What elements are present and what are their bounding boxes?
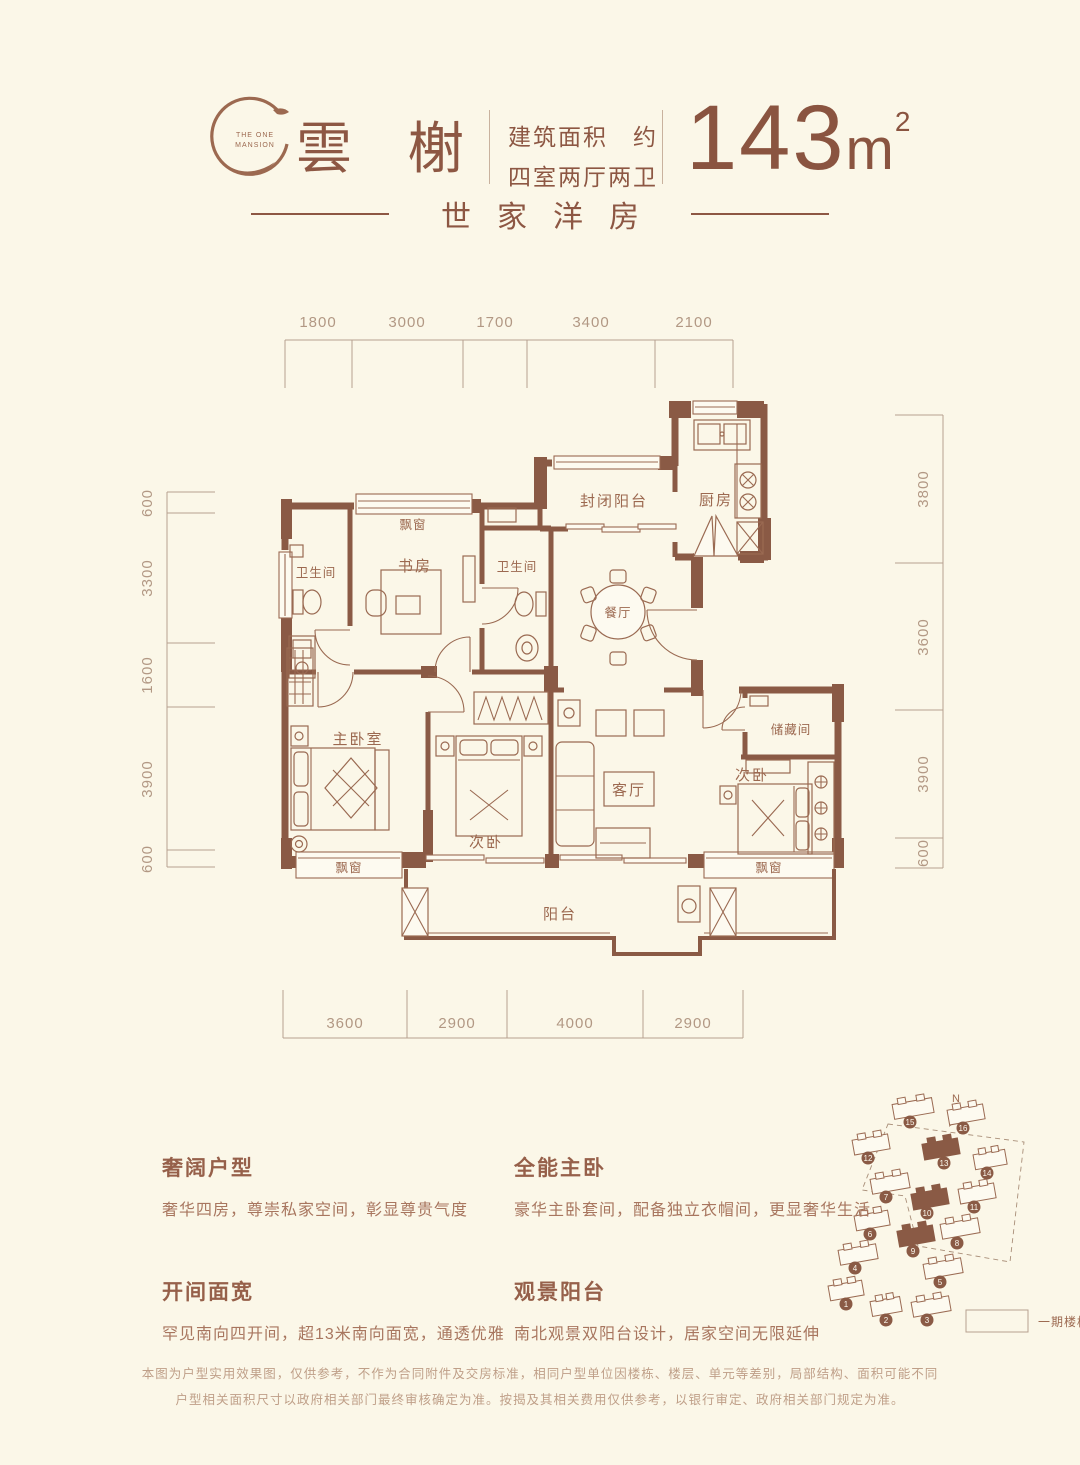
- feature-title: 开间面宽: [162, 1276, 512, 1306]
- feature-desc: 豪华主卧套间，配备独立衣帽间，更显奢华生活: [514, 1196, 864, 1220]
- legend-swatch: [966, 1310, 1028, 1332]
- siteplan-building-10-highlighted: [910, 1183, 949, 1210]
- bedroom-mid-furniture: [436, 692, 548, 836]
- label-living: 客厅: [612, 782, 646, 799]
- siteplan-building-9-highlighted: [896, 1220, 935, 1247]
- feature-title: 奢阔户型: [162, 1152, 512, 1182]
- dim-top-5: 2100: [675, 314, 712, 331]
- label-dining: 餐厅: [604, 605, 631, 620]
- dim-top-2: 3000: [388, 314, 425, 331]
- floor-plan-canvas: 1800 3000 1700 3400 2100 600 3300 1600 3…: [0, 0, 1080, 1465]
- label-kitchen: 厨房: [699, 492, 733, 509]
- dim-right-1: 3800: [915, 470, 932, 507]
- siteplan-building-3: [910, 1291, 951, 1317]
- label-study: 书房: [398, 558, 432, 575]
- label-bay-right: 飘窗: [755, 861, 782, 875]
- siteplan-building-5: [922, 1253, 963, 1279]
- dim-left-1: 600: [139, 489, 156, 517]
- feature-title: 观景阳台: [514, 1276, 864, 1306]
- label-enclosed-balcony: 封闭阳台: [580, 493, 648, 510]
- siteplan-building-7: [869, 1168, 910, 1194]
- building-number: 7: [884, 1193, 889, 1202]
- building-number: 3: [925, 1316, 930, 1325]
- building-number: 14: [983, 1169, 992, 1178]
- dim-bottom-4: 2900: [674, 1015, 711, 1032]
- dim-bottom-3: 4000: [556, 1015, 593, 1032]
- feature-title: 全能主卧: [514, 1152, 864, 1182]
- dim-top-3: 1700: [476, 314, 513, 331]
- dim-top-1: 1800: [299, 314, 336, 331]
- dim-left-2: 3300: [139, 559, 156, 596]
- feature-luxury-layout: 奢阔户型 奢华四房，尊崇私家空间，彰显尊贵气度: [162, 1152, 512, 1220]
- kitchen-swing-door: [694, 516, 738, 556]
- dim-left-3: 1600: [139, 656, 156, 693]
- dimension-left: 600 3300 1600 3900 600: [139, 489, 215, 873]
- building-number: 8: [955, 1239, 960, 1248]
- feature-master-suite: 全能主卧 豪华主卧套间，配备独立衣帽间，更显奢华生活: [514, 1152, 864, 1220]
- building-number: 16: [959, 1124, 968, 1133]
- feature-desc: 罕见南向四开间，超13米南向面宽，通透优雅: [162, 1320, 512, 1344]
- disclaimer-line1: 本图为户型实用效果图，仅供参考，不作为合同附件及交房标准，相同户型单位因楼栋、楼…: [0, 1363, 1080, 1382]
- dim-left-4: 3900: [139, 760, 156, 797]
- label-bay-top: 飘窗: [399, 518, 426, 532]
- label-bay-left: 飘窗: [335, 861, 362, 875]
- feature-wide-frontage: 开间面宽 罕见南向四开间，超13米南向面宽，通透优雅: [162, 1276, 512, 1344]
- building-number: 5: [938, 1278, 943, 1287]
- building-number: 6: [868, 1230, 873, 1239]
- building-number: 2: [884, 1316, 889, 1325]
- dimension-top: 1800 3000 1700 3400 2100: [285, 314, 733, 388]
- feature-desc: 奢华四房，尊崇私家空间，彰显尊贵气度: [162, 1196, 512, 1220]
- building-number: 11: [970, 1203, 979, 1212]
- doors: [315, 516, 745, 730]
- balcony-structure: [402, 869, 834, 954]
- bath-mid-fixtures: [515, 592, 546, 661]
- legend-label: 一期楼栋: [1038, 1314, 1080, 1329]
- building-number: 12: [864, 1154, 873, 1163]
- dim-left-5: 600: [139, 845, 156, 873]
- dim-bottom-2: 2900: [438, 1015, 475, 1032]
- dim-top-4: 3400: [572, 314, 609, 331]
- siteplan-building-4: [837, 1239, 878, 1265]
- building-number: 10: [923, 1209, 932, 1218]
- dimension-bottom: 3600 2900 4000 2900: [283, 990, 743, 1038]
- dim-right-4: 600: [915, 839, 932, 867]
- dim-right-2: 3600: [915, 618, 932, 655]
- label-bedroom-right: 次卧: [735, 767, 769, 784]
- building-number: 15: [906, 1118, 915, 1127]
- disclaimer-line2: 户型相关面积尺寸以政府相关部门最终审核确定为准。按揭及其相关费用仅供参考，以银行…: [0, 1389, 1080, 1408]
- siteplan-building-8: [939, 1213, 980, 1239]
- feature-desc: 南北观景双阳台设计，居家空间无限延伸: [514, 1320, 864, 1344]
- label-storage: 储藏间: [771, 722, 812, 737]
- dimension-right: 3800 3600 3900 600: [895, 415, 943, 868]
- building-number: 9: [911, 1247, 916, 1256]
- label-balcony: 阳台: [543, 906, 577, 923]
- siteplan-building-11: [957, 1178, 996, 1204]
- building-number: 4: [853, 1264, 858, 1273]
- siteplan-building-13-highlighted: [921, 1133, 960, 1160]
- label-bath-mid: 卫生间: [497, 560, 538, 574]
- dim-right-3: 3900: [915, 755, 932, 792]
- dim-bottom-1: 3600: [326, 1015, 363, 1032]
- bay-window-study: [356, 494, 472, 514]
- label-bath-left: 卫生间: [296, 566, 337, 580]
- siteplan-building-14: [972, 1144, 1007, 1169]
- living-furniture: [556, 700, 664, 858]
- label-bedroom-mid: 次卧: [469, 834, 503, 851]
- label-master: 主卧室: [332, 731, 383, 748]
- building-number: 13: [940, 1159, 949, 1168]
- siteplan-building-2: [869, 1292, 902, 1317]
- siteplan-building-15: [891, 1093, 934, 1120]
- feature-view-balcony: 观景阳台 南北观景双阳台设计，居家空间无限延伸: [514, 1276, 864, 1344]
